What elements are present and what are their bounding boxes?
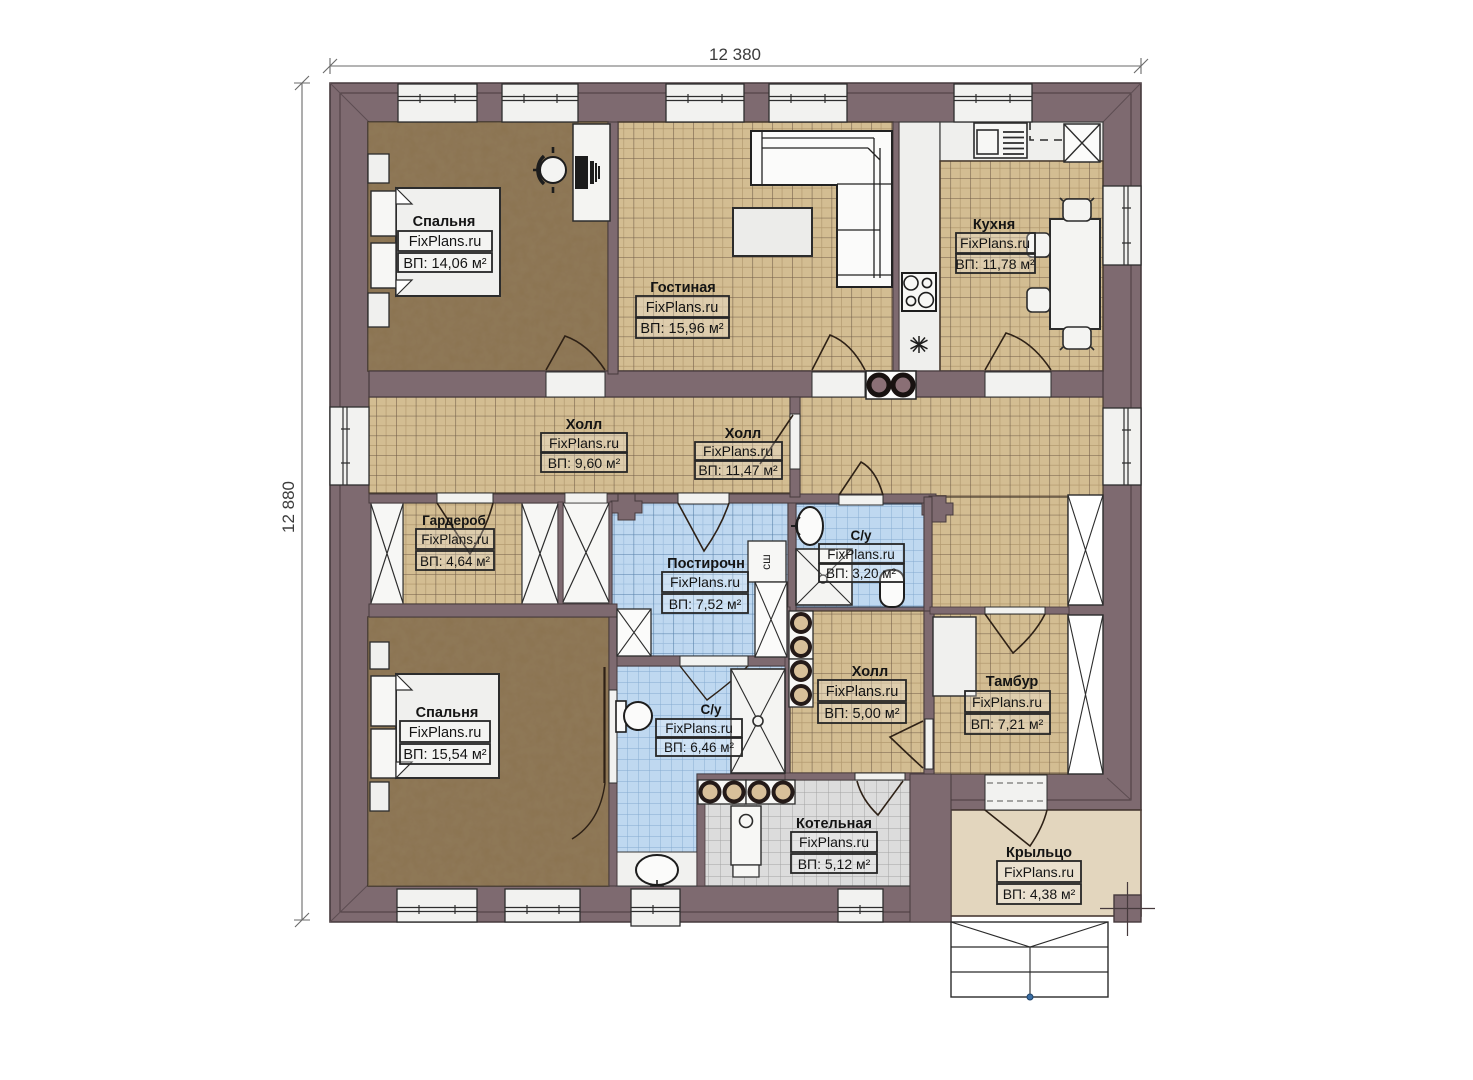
svg-text:FixPlans.ru: FixPlans.ru [799,834,869,850]
svg-text:Холл: Холл [566,417,602,433]
svg-text:Тамбур: Тамбур [986,674,1039,690]
svg-text:Гардероб: Гардероб [422,513,486,528]
svg-text:ВП: 7,21 м²: ВП: 7,21 м² [971,716,1044,732]
svg-text:ВП: 15,54 м²: ВП: 15,54 м² [403,747,486,763]
svg-text:Постирочн: Постирочн [667,556,745,572]
svg-text:С/у: С/у [700,702,722,717]
svg-text:FixPlans.ru: FixPlans.ru [827,547,895,562]
svg-text:ВП: 11,47 м²: ВП: 11,47 м² [698,462,778,478]
svg-text:С/у: С/у [850,528,872,543]
svg-text:Кухня: Кухня [973,217,1015,233]
svg-text:FixPlans.ru: FixPlans.ru [972,694,1042,710]
svg-text:ВП: 9,60 м²: ВП: 9,60 м² [548,455,621,471]
svg-text:Гостиная: Гостиная [650,280,716,296]
svg-text:сш: сш [759,554,773,570]
svg-text:FixPlans.ru: FixPlans.ru [960,235,1030,251]
svg-text:ВП: 5,00 м²: ВП: 5,00 м² [824,706,899,722]
svg-text:ВП: 11,78 м²: ВП: 11,78 м² [955,256,1035,272]
svg-text:ВП: 3,20 м²: ВП: 3,20 м² [826,566,897,581]
svg-text:Холл: Холл [852,664,888,680]
svg-text:ВП: 6,46 м²: ВП: 6,46 м² [664,740,735,755]
svg-text:FixPlans.ru: FixPlans.ru [646,300,719,316]
svg-text:ВП: 5,12 м²: ВП: 5,12 м² [798,856,871,872]
svg-text:FixPlans.ru: FixPlans.ru [409,725,482,741]
svg-text:Спальня: Спальня [416,705,479,721]
svg-text:FixPlans.ru: FixPlans.ru [826,684,899,700]
svg-text:FixPlans.ru: FixPlans.ru [421,532,489,547]
svg-text:Крыльцо: Крыльцо [1006,845,1072,861]
svg-text:Котельная: Котельная [796,816,872,832]
svg-text:FixPlans.ru: FixPlans.ru [549,435,619,451]
svg-text:ВП: 7,52 м²: ВП: 7,52 м² [669,596,742,612]
svg-text:FixPlans.ru: FixPlans.ru [409,234,482,250]
svg-text:FixPlans.ru: FixPlans.ru [703,443,773,459]
svg-text:ВП: 14,06 м²: ВП: 14,06 м² [403,256,486,272]
svg-text:Спальня: Спальня [413,214,476,230]
svg-text:Холл: Холл [725,426,761,442]
svg-text:ВП: 4,38 м²: ВП: 4,38 м² [1003,886,1076,902]
svg-text:12 380: 12 380 [709,45,761,64]
svg-text:12 880: 12 880 [279,481,298,533]
svg-text:FixPlans.ru: FixPlans.ru [1004,864,1074,880]
svg-text:ВП: 4,64 м²: ВП: 4,64 м² [420,554,491,569]
svg-text:FixPlans.ru: FixPlans.ru [670,574,740,590]
svg-text:ВП: 15,96 м²: ВП: 15,96 м² [640,321,723,337]
svg-text:FixPlans.ru: FixPlans.ru [665,721,733,736]
